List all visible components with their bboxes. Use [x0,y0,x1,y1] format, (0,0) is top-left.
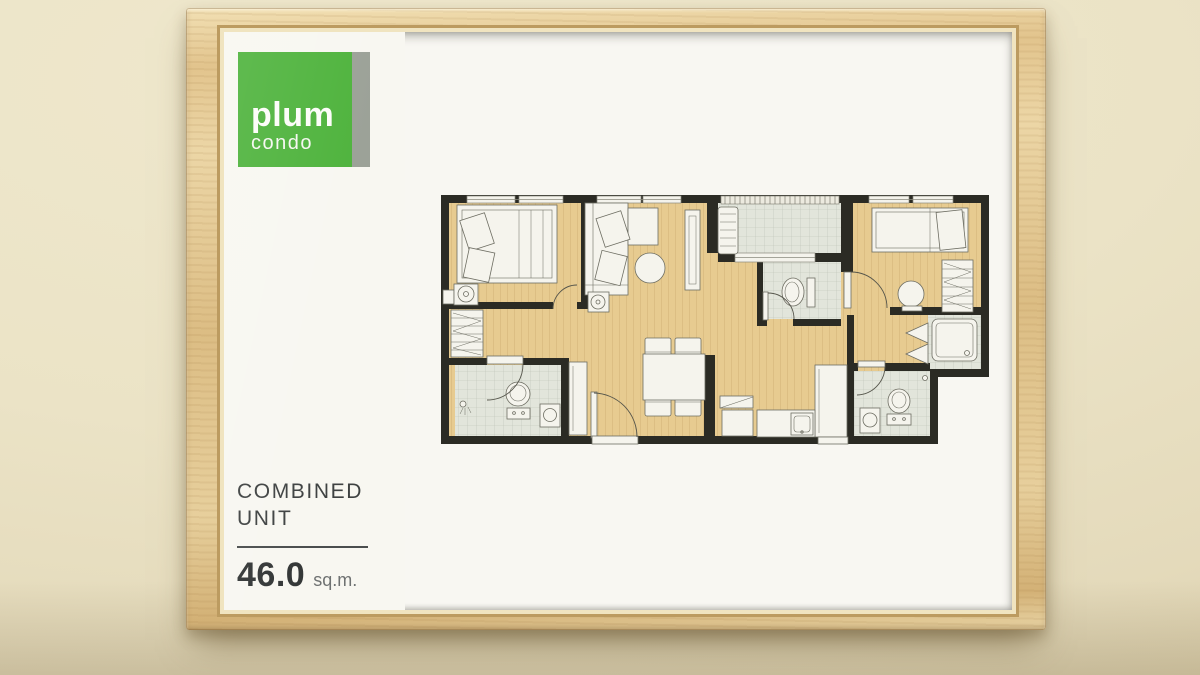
wardrobe-right-icon [942,260,973,312]
brand-subname: condo [251,132,352,155]
dark-mat-board [405,32,1012,610]
unit-area: 46.0 sq.m. [237,556,357,595]
unit-title-line2: UNIT [237,505,363,532]
kitchen-counter-left [569,362,587,435]
shower-tray-icon [932,319,977,361]
shower-head-right-icon [923,376,928,381]
title-divider-line [237,546,368,548]
floor-plan-poster: plum condo COMBINED UNIT 46.0 sq.m. [224,32,1012,610]
toilet-middle-icon [782,278,815,307]
area-value: 46.0 [237,556,305,595]
washing-machine-icon [718,207,738,254]
area-unit-label: sq.m. [313,570,357,591]
cream-wall-background: plum condo COMBINED UNIT 46.0 sq.m. [0,0,1200,675]
tv-console-icon [685,210,700,290]
sink-right-icon [860,408,880,433]
bed-double-icon [457,205,557,283]
poster-left-panel: plum condo COMBINED UNIT 46.0 sq.m. [224,32,405,610]
plum-condo-logo: plum condo [238,52,352,167]
entrance-door-leaf [591,392,597,438]
balcony-vent [721,196,839,204]
wood-picture-frame: plum condo COMBINED UNIT 46.0 sq.m. [186,8,1046,630]
bed-single-icon [872,208,968,252]
bedroom-right-door-leaf [844,272,851,308]
logo-gray-stripe [352,52,370,167]
stool-icon [898,281,924,311]
bathroom-right-door-leaf [858,361,885,367]
toilet-right-icon [887,389,911,425]
sink-left-icon [540,404,560,427]
coffee-table-icon [635,253,665,283]
ac-unit-living-icon [588,292,609,312]
unit-title-line1: COMBINED [237,478,363,505]
entrance-threshold [592,436,638,444]
toilet-left-icon [506,382,530,419]
kitchen-shelf-icon [720,396,753,436]
bathroom-middle-door-leaf [763,292,768,320]
entrance-threshold-right [818,437,848,444]
bathroom-left-door-leaf [487,356,523,364]
brand-name: plum [251,98,352,132]
floor-plan-drawing [441,192,989,450]
unit-title: COMBINED UNIT [237,478,363,532]
wardrobe-left-icon [451,310,483,357]
